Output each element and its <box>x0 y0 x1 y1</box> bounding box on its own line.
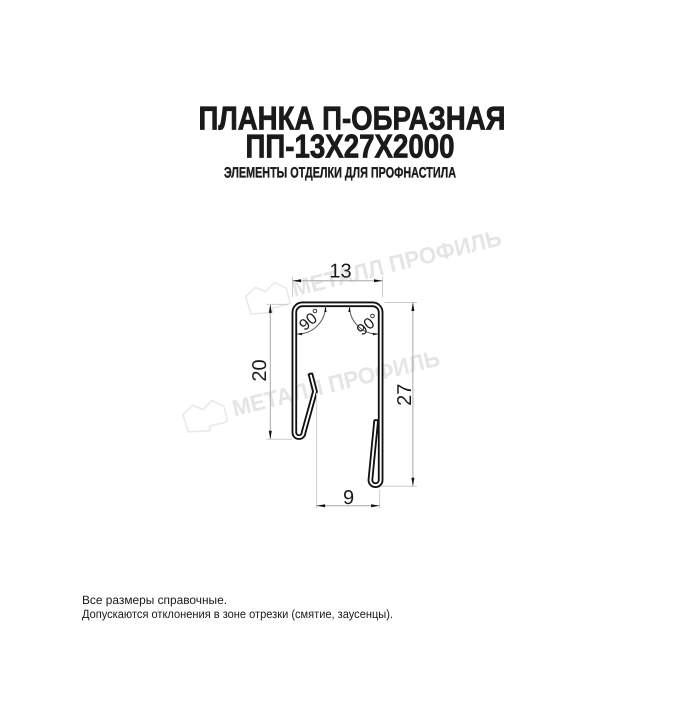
svg-text:Все размеры справочные.: Все размеры справочные. <box>82 593 227 607</box>
svg-text:13: 13 <box>329 261 351 283</box>
svg-text:Допускаются отклонения в зоне: Допускаются отклонения в зоне отрезки (с… <box>82 607 393 621</box>
svg-text:20: 20 <box>249 359 271 381</box>
svg-text:ПП-13Х27Х2000: ПП-13Х27Х2000 <box>246 128 455 165</box>
svg-text:9: 9 <box>343 487 354 509</box>
svg-text:ЭЛЕМЕНТЫ ОТДЕЛКИ ДЛЯ ПРОФНАСТИ: ЭЛЕМЕНТЫ ОТДЕЛКИ ДЛЯ ПРОФНАСТИЛА <box>224 165 456 182</box>
svg-text:27: 27 <box>394 384 416 406</box>
